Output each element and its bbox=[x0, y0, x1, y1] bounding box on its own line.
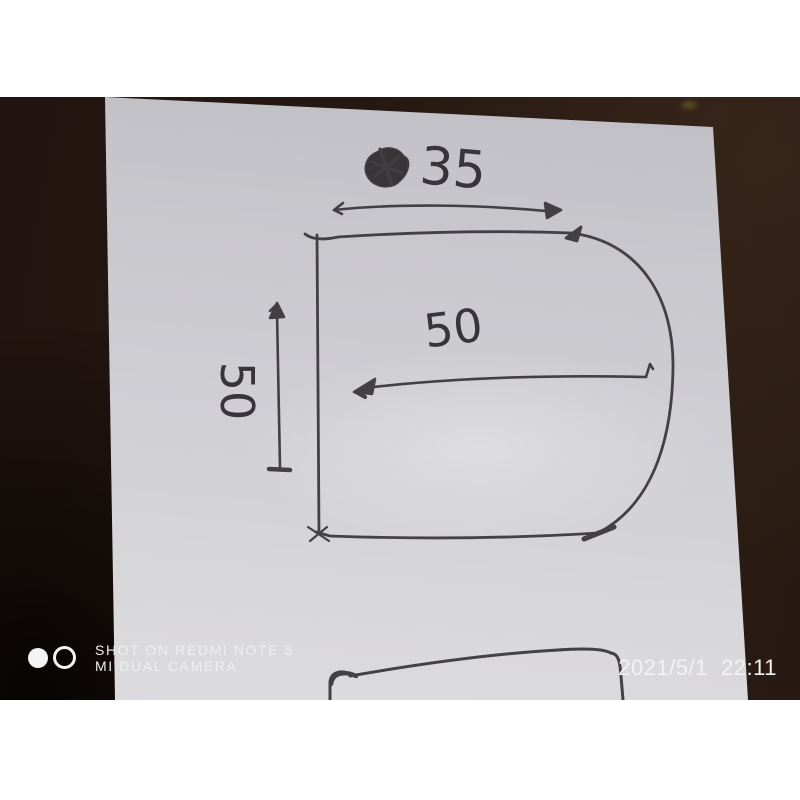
dimension-line-inner-50 bbox=[354, 364, 653, 397]
watermark-solid-dot-icon bbox=[28, 648, 48, 668]
dimension-line-top-35 bbox=[334, 203, 561, 218]
watermark-line2: MI DUAL CAMERA bbox=[95, 658, 237, 674]
dimension-line-left-50 bbox=[269, 303, 290, 470]
partial-second-shape bbox=[330, 649, 623, 700]
dimension-label-35: 35 bbox=[418, 140, 488, 198]
sketch-drawing bbox=[0, 97, 800, 700]
photo: 35 50 50 SHOT ON REDMI NOTE 5 MI DUAL CA… bbox=[0, 97, 800, 700]
page-background: 35 50 50 SHOT ON REDMI NOTE 5 MI DUAL CA… bbox=[0, 0, 800, 800]
watermark-line1: SHOT ON REDMI NOTE 5 bbox=[95, 642, 294, 658]
photo-timestamp: 2021/5/1 22:11 bbox=[618, 655, 777, 681]
dimension-label-50-inner: 50 bbox=[421, 302, 485, 355]
d-shape-outline bbox=[305, 227, 673, 541]
dimension-label-50-height: 50 bbox=[214, 362, 260, 421]
watermark-ring-icon bbox=[53, 646, 76, 669]
